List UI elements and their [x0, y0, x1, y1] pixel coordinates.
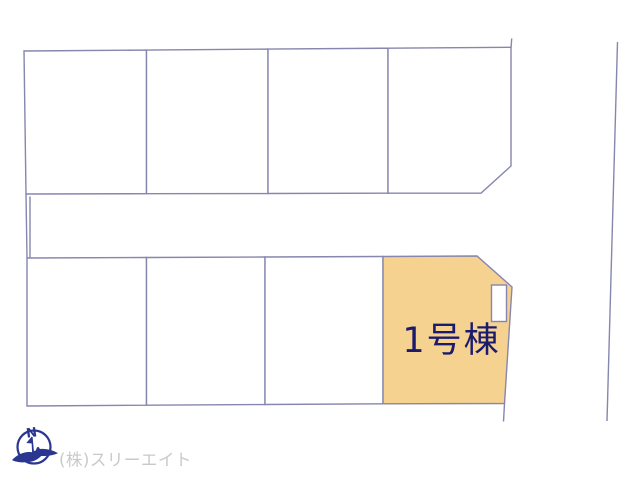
lot-tail-line: [504, 404, 505, 422]
building-label: 1号棟: [402, 321, 500, 361]
lot-top-4-cut-corner: [388, 47, 511, 193]
compass-logo: N: [12, 425, 58, 463]
company-credit: (株)スリーエイト: [59, 451, 192, 470]
lot-top-1: [24, 50, 147, 194]
site-boundary-right: [607, 42, 618, 421]
lot-notch-rect: [492, 285, 507, 322]
parcel-lines: [24, 39, 618, 422]
lot-bottom-1: [27, 258, 147, 407]
boundary-tick-top-right: [511, 39, 512, 48]
lot-top-2: [147, 49, 269, 194]
lot-bottom-3: [265, 257, 383, 405]
site-plan-page: 1号棟 N (株)スリーエイト: [0, 0, 640, 480]
lot-top-3: [268, 48, 388, 193]
road-left-outer-line: [26, 194, 27, 258]
lot-bottom-2: [147, 257, 266, 405]
site-plan-drawing: 1号棟 N (株)スリーエイト: [0, 0, 640, 480]
